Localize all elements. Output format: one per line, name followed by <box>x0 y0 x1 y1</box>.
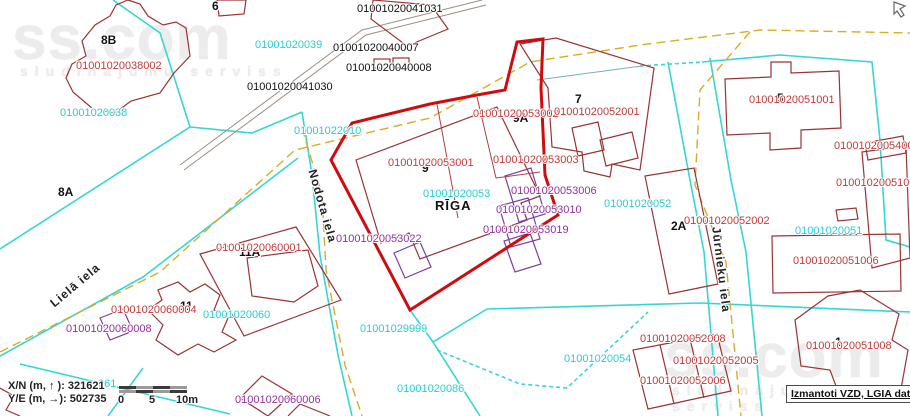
map-label: 01001020052001 <box>554 107 640 119</box>
scale-bar-segment <box>119 386 187 389</box>
map-label: 01001020053001 <box>388 158 474 170</box>
street-name-label: Jūrnieku iela <box>710 226 733 313</box>
attribution-box: Izmantoti VZD, LGIA dati <box>786 385 910 403</box>
map-label: RĪGA <box>435 199 472 213</box>
map-label: 6 <box>212 0 219 13</box>
map-label: 01001020051006 <box>793 256 879 268</box>
map-label: 01001020060001 <box>216 243 302 255</box>
map-label: 01001020052005 <box>673 356 759 368</box>
map-label: Y/E (m, →): 502735 <box>8 394 106 406</box>
map-label: 01001020051003 <box>836 178 910 190</box>
map-label: 01001022010 <box>294 126 361 138</box>
map-label: 01001020041030 <box>247 82 333 94</box>
map-label: 01001020052008 <box>640 334 726 346</box>
map-label: 01001020041031 <box>357 4 443 16</box>
map-label: 0 <box>118 395 124 407</box>
cadastral-map-canvas[interactable]: ss.com sludinājumu serviss ss.com sludin… <box>0 0 910 416</box>
map-label: 8B <box>101 34 116 47</box>
map-label: 01001020086 <box>397 384 464 396</box>
map-label: 5 <box>149 395 155 407</box>
map-label: 01001020053022 <box>336 234 422 246</box>
map-label: 01001020053 <box>423 189 490 201</box>
map-label: 01001020053003 <box>493 155 579 167</box>
map-label: 01001020053019 <box>483 225 569 237</box>
map-label: 01001020052 <box>604 199 671 211</box>
map-labels-layer: 0100102004103101001020040007010010200400… <box>0 0 910 416</box>
map-label: 01001020040007 <box>333 43 419 55</box>
map-label: 01001020053010 <box>496 205 582 217</box>
map-label: 01001020052006 <box>640 376 726 388</box>
map-label: 8A <box>58 186 73 199</box>
map-label: 01001020053006 <box>511 186 597 198</box>
map-label: 01001020038002 <box>76 61 162 73</box>
map-label: X/N (m, ↑ ): 321621 <box>8 381 105 393</box>
map-label: 10m <box>176 395 198 407</box>
scale-bar <box>119 386 187 393</box>
map-label: 01001020051 <box>795 226 862 238</box>
scale-bar-segment <box>119 390 187 393</box>
map-label: 01001020060004 <box>111 305 197 317</box>
street-name-label: Nodota iela <box>306 168 339 244</box>
map-label: 01001020060 <box>203 310 270 322</box>
map-label: 01001020060008 <box>66 324 152 336</box>
map-label: 01001020054002 <box>834 141 910 153</box>
map-label: 01001029999 <box>360 324 427 336</box>
map-label: 01001020038 <box>60 108 127 120</box>
map-label: 01001020060006 <box>235 395 321 407</box>
map-label: 01001020054 <box>564 354 631 366</box>
map-label: 01001020039 <box>255 40 322 52</box>
map-label: 7 <box>575 93 582 106</box>
map-label: 01001020051001 <box>749 95 835 107</box>
street-name-label: Lielā iela <box>48 261 103 310</box>
map-label: 01001020051008 <box>806 341 892 353</box>
map-label: 01001020040008 <box>346 63 432 75</box>
map-label: 01001020052002 <box>684 216 770 228</box>
map-label: 01001020053002 <box>473 109 559 121</box>
